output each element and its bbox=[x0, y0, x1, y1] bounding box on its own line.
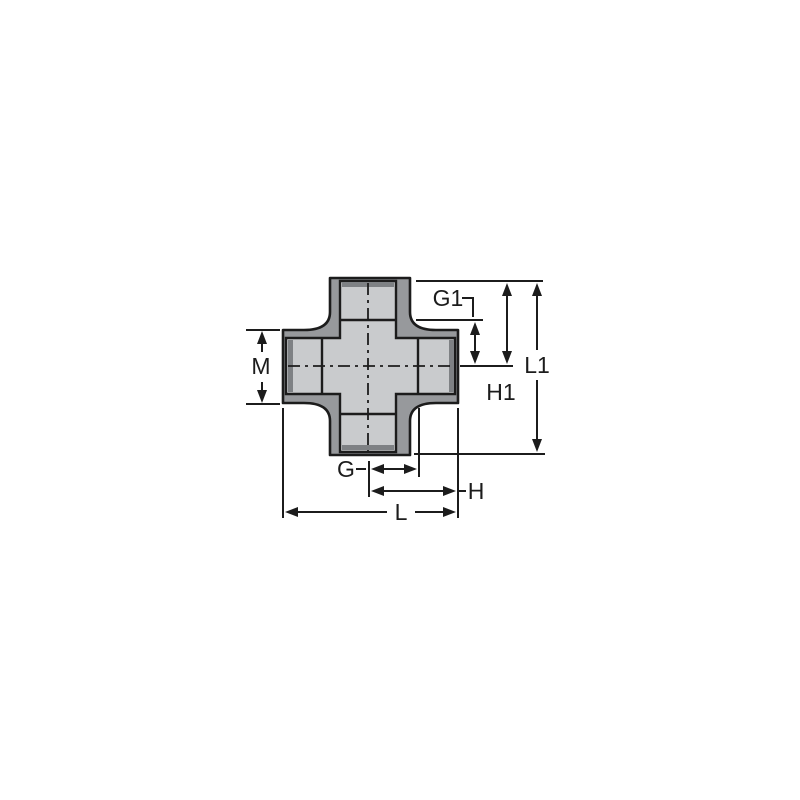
dim-label-G1: G1 bbox=[433, 285, 464, 311]
arrowhead-down bbox=[470, 351, 480, 364]
dim-label-L1: L1 bbox=[524, 352, 550, 378]
arrowhead-right bbox=[443, 486, 456, 496]
cross-fitting-diagram: M G1 H1 L1 bbox=[0, 0, 800, 800]
dim-label-H: H bbox=[468, 478, 485, 504]
dim-label-M: M bbox=[251, 353, 270, 379]
arrowhead-down bbox=[502, 351, 512, 364]
dim-label-H1: H1 bbox=[486, 379, 515, 405]
leader-line bbox=[462, 298, 473, 317]
arrowhead-right bbox=[443, 507, 456, 517]
arrowhead-down bbox=[532, 439, 542, 452]
arrowhead-right bbox=[404, 464, 417, 474]
dim-M: M bbox=[246, 330, 280, 404]
socket-mouth-shade-bottom bbox=[342, 445, 394, 450]
arrowhead-down bbox=[257, 390, 267, 403]
dim-label-G: G bbox=[337, 456, 355, 482]
dim-label-L: L bbox=[395, 499, 408, 525]
dim-H1: H1 bbox=[486, 283, 515, 405]
drawing-canvas: M G1 H1 L1 bbox=[0, 0, 800, 800]
